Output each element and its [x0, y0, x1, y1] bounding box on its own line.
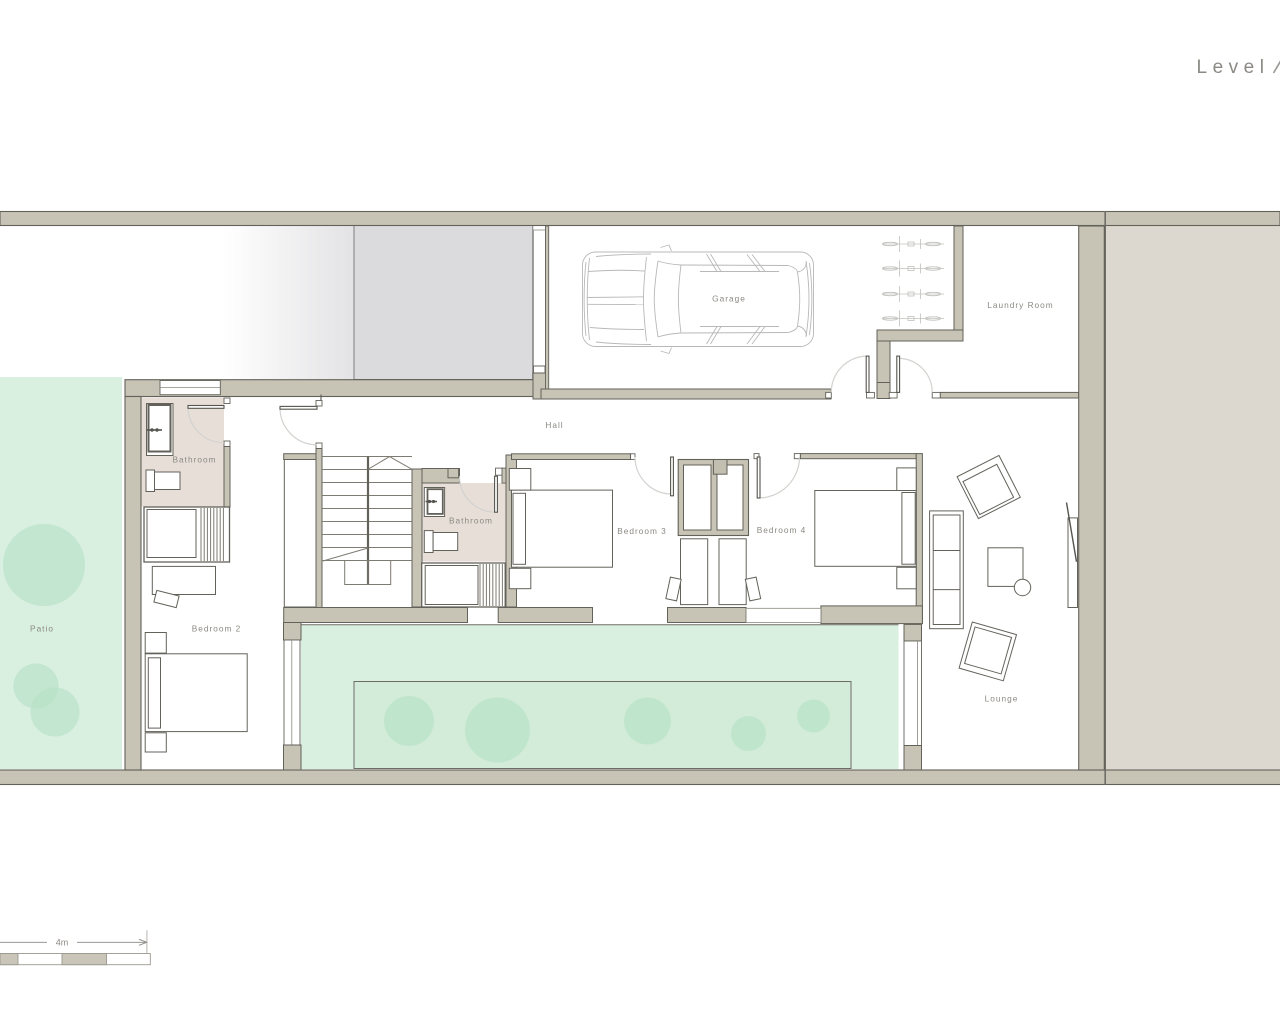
svg-text:Patio: Patio [30, 624, 54, 634]
svg-text:Level: Level [1197, 57, 1270, 78]
svg-text:Bedroom 2: Bedroom 2 [192, 624, 242, 634]
svg-text:Bathroom: Bathroom [173, 455, 217, 465]
svg-text:Bathroom: Bathroom [449, 516, 493, 526]
svg-text:Hall: Hall [545, 420, 563, 430]
svg-text:Lounge: Lounge [985, 694, 1019, 704]
svg-text:Garage: Garage [712, 294, 746, 304]
svg-text:Laundry Room: Laundry Room [987, 300, 1053, 310]
svg-text:Bedroom 3: Bedroom 3 [617, 526, 667, 536]
svg-text:4m: 4m [56, 938, 69, 948]
svg-text:Bedroom 4: Bedroom 4 [757, 525, 807, 535]
